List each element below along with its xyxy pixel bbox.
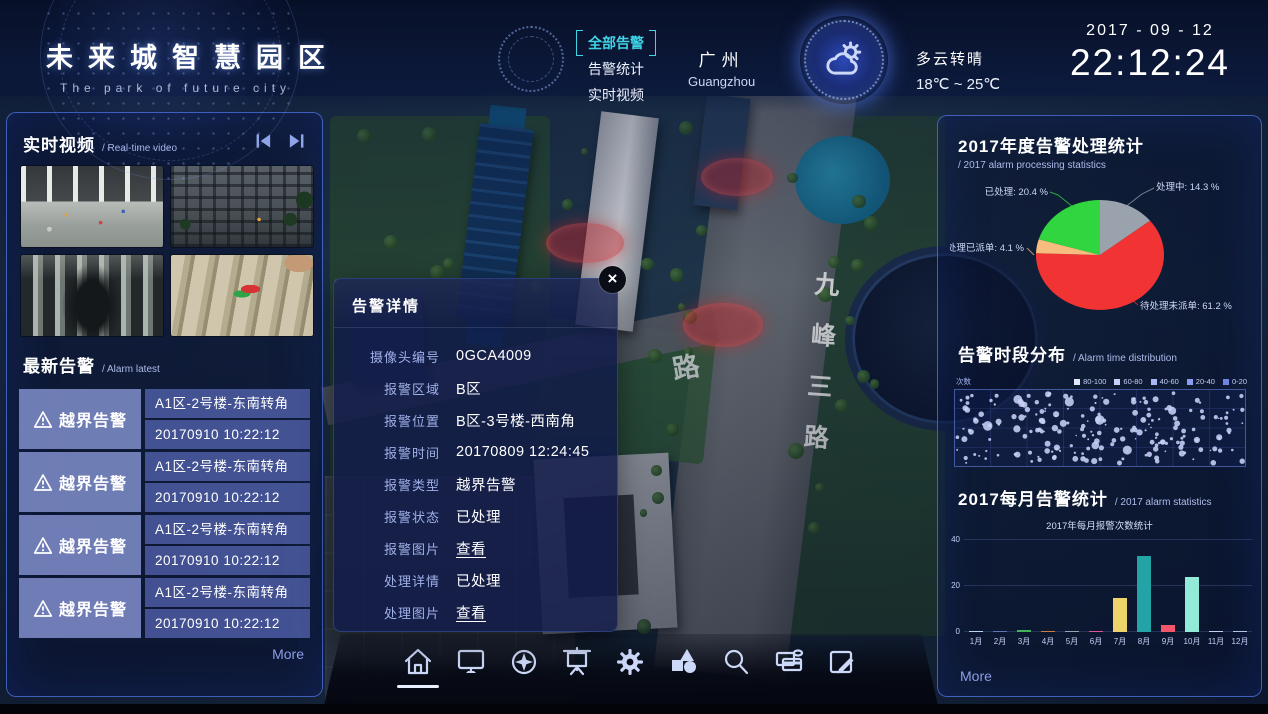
nav-item[interactable]: 全部告警	[578, 32, 654, 54]
popup-field-row: 报警图片 查看	[334, 532, 617, 564]
dashboard: 九峰三路 路 未来城智慧园区 The park of future city 全…	[0, 0, 1268, 714]
bar	[993, 631, 1007, 633]
scatter-dot	[993, 403, 995, 405]
legend-swatch	[1187, 379, 1193, 385]
scatter-dot	[1147, 408, 1150, 411]
nav-item[interactable]: 告警统计	[578, 58, 654, 80]
scatter-dot	[1026, 394, 1030, 398]
field-value[interactable]: 查看	[456, 538, 486, 559]
scatter-dot	[1180, 437, 1183, 440]
scatter-dot	[1192, 458, 1194, 460]
scatter-dot	[1144, 429, 1146, 431]
scatter-dot	[1086, 447, 1090, 451]
scatter-dot	[1024, 407, 1029, 412]
scatter-dot	[1224, 416, 1228, 420]
warning-icon	[33, 410, 53, 429]
scatter-dot	[1149, 440, 1154, 445]
scatter-dot	[995, 419, 1001, 425]
scatter-dot	[1094, 402, 1096, 404]
scatter-dot	[1217, 418, 1219, 420]
edit-button[interactable]	[825, 646, 859, 688]
scatter-dot	[959, 399, 962, 402]
legend-items: 80-100 60-80 40-60 20-40 0-20	[1074, 377, 1247, 386]
alarm-type-badge: 越界告警	[19, 515, 141, 575]
scatter-dot	[1117, 461, 1122, 466]
home-button[interactable]	[401, 646, 435, 688]
scatter-dot	[1013, 425, 1020, 432]
scatter-dot	[1080, 414, 1084, 418]
legend-item: 80-100	[1074, 377, 1106, 386]
alarm-row[interactable]: 越界告警 A1区-2号楼-东南转角 20170910 10:22:12	[19, 452, 310, 512]
scatter-dot	[1171, 391, 1175, 395]
bar	[1041, 631, 1055, 633]
popup-field-row: 处理图片 查看	[334, 596, 617, 628]
alarm-type-badge: 越界告警	[19, 389, 141, 449]
scatter-dot	[1053, 411, 1059, 417]
scatter-dot	[994, 394, 998, 398]
scatter-dot	[1164, 450, 1166, 452]
scatter-dot	[989, 399, 992, 402]
edit-icon	[826, 646, 858, 678]
bar-chart-inner-title: 2017年每月报警次数统计	[938, 518, 1261, 532]
x-tick: 5月	[1060, 636, 1084, 647]
scatter-dot	[970, 394, 973, 397]
pie-section-subheader: / 2017 alarm processing statistics	[938, 157, 1261, 171]
alarm-location: A1区-2号楼-东南转角	[145, 452, 310, 481]
scatter-dot	[1166, 405, 1172, 411]
alarm-detail-popup: × 告警详情 摄像头编号 0GCA4009 报警区域 B区 报警位置 B区-3号…	[333, 278, 618, 632]
scatter-dot	[1146, 413, 1151, 418]
alarm-timestamp: 20170910 10:22:12	[145, 483, 310, 512]
scatter-dot	[1183, 451, 1186, 454]
main-nav: 全部告警告警统计实时视频	[578, 32, 654, 106]
scatter-dot	[1058, 450, 1060, 452]
scatter-dot	[1150, 427, 1152, 429]
scatter-dot	[1194, 398, 1199, 403]
weather-badge	[800, 16, 888, 104]
alarm-type-label: 越界告警	[59, 407, 127, 431]
x-tick: 4月	[1036, 636, 1060, 647]
field-value: 20170809 12:24:45	[456, 444, 590, 460]
popup-field-row: 报警位置 B区-3号楼-西南角	[334, 404, 617, 436]
scatter-dot	[1103, 399, 1109, 405]
field-value: 0GCA4009	[456, 348, 532, 364]
scatter-dot	[1081, 434, 1085, 438]
statistics-panel: 2017年度告警处理统计 / 2017 alarm processing sta…	[937, 115, 1262, 697]
x-tick: 7月	[1108, 636, 1132, 647]
alarm-row[interactable]: 越界告警 A1区-2号楼-东南转角 20170910 10:22:12	[19, 578, 310, 638]
bar	[1065, 631, 1079, 633]
bar	[1113, 598, 1127, 633]
legend-swatch	[1074, 379, 1080, 385]
scatter-dot	[1034, 400, 1038, 404]
alarm-info: A1区-2号楼-东南转角 20170910 10:22:12	[145, 515, 310, 575]
popup-title: 告警详情	[334, 279, 617, 328]
scatter-dot	[1239, 459, 1244, 464]
scatter-dot	[1053, 445, 1059, 451]
city-name: 广州	[688, 46, 755, 71]
scatter-dot	[1029, 430, 1032, 433]
city-name-en: Guangzhou	[688, 74, 755, 89]
date-label: 2017 - 09 - 12	[1070, 22, 1230, 40]
scatter-dot	[1200, 415, 1205, 420]
scatter-dot	[1148, 423, 1150, 425]
scatter-dot	[978, 411, 984, 417]
legend-swatch	[1223, 379, 1229, 385]
scatter-dot	[985, 450, 987, 452]
weather-temp: 18℃ ~ 25℃	[916, 75, 1000, 93]
scatter-dot	[965, 401, 969, 405]
field-value: 越界告警	[456, 474, 516, 495]
alarm-info: A1区-2号楼-东南转角 20170910 10:22:12	[145, 389, 310, 449]
projector-screen-icon	[561, 646, 593, 678]
scatter-dot	[1098, 445, 1103, 450]
scatter-dot	[1239, 394, 1243, 398]
scatter-dot	[1052, 455, 1056, 459]
scatter-dot	[1039, 418, 1045, 424]
x-tick: 6月	[1084, 636, 1108, 647]
legend-item: 20-40	[1187, 377, 1215, 386]
pie-section-header: 2017年度告警处理统计	[938, 116, 1261, 157]
bar	[1017, 630, 1031, 632]
scatter-dot	[973, 453, 976, 456]
scatter-dot	[1169, 437, 1172, 440]
alarm-type-label: 越界告警	[59, 596, 127, 620]
scatter-dot	[1219, 417, 1222, 420]
bar	[969, 631, 983, 633]
bottom-edge	[0, 704, 1268, 714]
pie-leader-line	[1050, 192, 1078, 211]
bar-gridline	[964, 539, 1252, 540]
scatter-axis-label: 次数	[956, 376, 971, 387]
monitor-button[interactable]	[454, 646, 488, 688]
popup-field-row: 报警时间 20170809 12:24:45	[334, 436, 617, 468]
alarm-section-subtitle: / Alarm latest	[102, 364, 160, 375]
field-label: 报警位置	[334, 411, 440, 430]
scatter-dot	[1195, 439, 1198, 442]
scatter-dot	[1091, 442, 1099, 450]
scatter-dot	[1066, 422, 1069, 425]
scatter-dot	[1212, 446, 1217, 451]
top-header: 未来城智慧园区 The park of future city 全部告警告警统计…	[0, 0, 1268, 112]
scatter-dot	[1217, 448, 1221, 452]
field-label: 报警类型	[334, 475, 440, 494]
scatter-dot	[1174, 421, 1180, 427]
scatter-dot	[1121, 457, 1124, 460]
cloud-sun-icon	[823, 39, 865, 81]
field-label: 处理详情	[334, 571, 440, 590]
scatter-dot	[1098, 457, 1102, 461]
scatter-dot	[1134, 438, 1136, 440]
scatter-dot	[1072, 456, 1078, 462]
scatter-dot	[1157, 418, 1159, 420]
page-subtitle: The park of future city	[60, 81, 340, 95]
scatter-dot	[1047, 392, 1051, 396]
scatter-dot	[996, 454, 999, 457]
alarm-row[interactable]: 越界告警 A1区-2号楼-东南转角 20170910 10:22:12	[19, 515, 310, 575]
scatter-dot	[963, 456, 967, 460]
bar	[1209, 631, 1223, 633]
popup-field-row: 报警区域 B区	[334, 372, 617, 404]
scatter-dot	[1104, 424, 1106, 426]
scatter-dot	[1097, 431, 1102, 436]
scatter-dot	[1044, 448, 1050, 454]
scatter-dot	[1073, 452, 1075, 454]
bar-chart: 2017年每月报警次数统计 02040 1月2月3月4月5月6月7月8月9月10…	[938, 518, 1261, 647]
scatter-dot	[1113, 393, 1115, 395]
pie-label: 待处理未派单: 61.2 %	[1140, 300, 1232, 312]
weather-text: 多云转晴 18℃ ~ 25℃	[916, 48, 1000, 93]
scatter-dot	[1199, 409, 1203, 413]
pie-leader-line	[1120, 188, 1154, 211]
legend-label: 60-80	[1123, 377, 1142, 386]
scatter-dot	[987, 424, 991, 428]
scatter-dot	[961, 436, 967, 442]
field-value: B区	[456, 378, 481, 399]
alarm-type-badge: 越界告警	[19, 578, 141, 638]
bar-chart-title: 2017每月告警统计	[958, 485, 1108, 510]
scatter-dot	[1240, 408, 1244, 412]
time-label: 22:12:24	[1070, 42, 1230, 84]
scatter-dot	[1209, 450, 1211, 452]
x-tick: 3月	[1012, 636, 1036, 647]
scatter-dot	[1089, 406, 1094, 411]
alarm-info: A1区-2号楼-东南转角 20170910 10:22:12	[145, 578, 310, 638]
scatter-dot	[1037, 458, 1041, 462]
scatter-dot	[1178, 445, 1183, 450]
scatter-dot	[1232, 409, 1234, 411]
scatter-dot	[1044, 441, 1050, 447]
scatter-dot	[1091, 458, 1097, 464]
x-tick: 12月	[1228, 636, 1252, 647]
scatter-dot	[1051, 451, 1053, 453]
scatter-legend: 次数 80-100 60-80 40-60 20-40 0-20	[956, 376, 1247, 387]
scatter-dot	[1075, 435, 1077, 437]
scatter-dot	[1225, 411, 1228, 414]
alarm-info: A1区-2号楼-东南转角 20170910 10:22:12	[145, 452, 310, 512]
field-label: 报警区域	[334, 379, 440, 398]
scatter-dot	[1087, 438, 1089, 440]
scatter-dot	[1153, 446, 1158, 451]
popup-fields: 摄像头编号 0GCA4009 报警区域 B区 报警位置 B区-3号楼-西南角 报…	[334, 328, 617, 628]
scatter-dot	[1213, 415, 1217, 419]
scatter-dot	[1226, 396, 1230, 400]
scatter-dot	[1154, 456, 1159, 461]
x-tick: 10月	[1180, 636, 1204, 647]
alarm-timestamp: 20170910 10:22:12	[145, 420, 310, 449]
pie-leader-line	[1027, 248, 1034, 255]
monitor-icon	[455, 646, 487, 678]
scatter-dot	[1059, 420, 1066, 427]
alarm-timestamp: 20170910 10:22:12	[145, 609, 310, 638]
scatter-dot	[1142, 397, 1145, 400]
bar-gridline	[964, 585, 1252, 586]
x-tick: 8月	[1132, 636, 1156, 647]
scatter-dot	[1080, 456, 1085, 461]
scatter-dot	[1091, 434, 1093, 436]
bar	[1089, 631, 1103, 633]
video-thumbnail[interactable]	[171, 255, 313, 336]
scatter-dot	[965, 462, 967, 464]
scatter-dot	[1081, 452, 1084, 455]
scatter-dot	[1037, 428, 1041, 432]
cards-button[interactable]	[772, 646, 806, 688]
field-label: 摄像头编号	[334, 347, 440, 366]
alarm-type-badge: 越界告警	[19, 452, 141, 512]
scatter-dot	[1140, 417, 1146, 423]
gear-icon	[614, 646, 646, 678]
scatter-dot	[1130, 428, 1134, 432]
bar-y-tick: 0	[944, 627, 960, 636]
screen-button[interactable]	[560, 646, 594, 688]
shapes-button[interactable]	[666, 646, 700, 688]
close-icon[interactable]: ×	[599, 266, 626, 293]
settings-button[interactable]	[613, 646, 647, 688]
scatter-dot	[1176, 441, 1180, 445]
legend-swatch	[1151, 379, 1157, 385]
bar-y-tick: 40	[944, 535, 960, 544]
particle-ring-graphic	[498, 26, 564, 92]
shapes-icon	[667, 646, 699, 678]
scatter-dot	[1155, 432, 1159, 436]
scatter-dot	[1086, 420, 1088, 422]
pie-label: 处理中: 14.3 %	[1156, 181, 1220, 193]
scatter-dot	[978, 455, 980, 457]
bar-chart-subtitle: / 2017 alarm statistics	[1115, 497, 1212, 508]
pie-chart-subtitle: / 2017 alarm processing statistics	[958, 160, 1106, 171]
alarm-row[interactable]: 越界告警 A1区-2号楼-东南转角 20170910 10:22:12	[19, 389, 310, 449]
field-value: 已处理	[456, 506, 501, 527]
nav-item-label: 告警统计	[588, 61, 644, 77]
field-label: 报警状态	[334, 507, 440, 526]
scatter-dot	[1048, 403, 1051, 406]
video-thumbnail[interactable]	[21, 166, 163, 247]
x-tick: 9月	[1156, 636, 1180, 647]
scatter-dot	[1035, 413, 1037, 415]
field-value: 已处理	[456, 570, 501, 591]
video-thumbnail[interactable]	[21, 255, 163, 336]
scatter-dot	[1139, 401, 1141, 403]
scatter-dot	[1113, 427, 1119, 433]
scatter-dot	[1122, 446, 1131, 455]
scatter-dot	[1030, 460, 1033, 463]
scatter-dot	[1136, 429, 1142, 435]
alarm-list: 越界告警 A1区-2号楼-东南转角 20170910 10:22:12 越界告警…	[19, 389, 310, 638]
scatter-chart	[954, 389, 1246, 467]
scatter-dot	[1172, 416, 1177, 421]
scatter-dot	[1131, 397, 1135, 401]
scatter-dot	[1191, 428, 1195, 432]
x-tick: 1月	[964, 636, 988, 647]
legend-label: 80-100	[1083, 377, 1106, 386]
weather-desc: 多云转晴	[916, 48, 1000, 69]
scatter-dot	[1189, 409, 1192, 412]
compass-button[interactable]	[507, 646, 541, 688]
scatter-dot	[1181, 429, 1186, 434]
brand: 未来城智慧园区 The park of future city	[46, 36, 340, 95]
scatter-dot	[988, 438, 991, 441]
alarm-section-title: 最新告警	[23, 352, 95, 377]
right-more-link[interactable]: More	[960, 668, 992, 684]
scatter-dot	[1093, 395, 1097, 399]
alarm-location: A1区-2号楼-东南转角	[145, 515, 310, 544]
nav-item-label: 实时视频	[588, 87, 644, 103]
pie-label: 已处理: 20.4 %	[984, 186, 1048, 198]
compass-icon	[508, 646, 540, 678]
field-label: 处理图片	[334, 603, 440, 622]
field-value: B区-3号楼-西南角	[456, 410, 575, 431]
pie-chart-title: 2017年度告警处理统计	[958, 132, 1144, 157]
bar	[1185, 577, 1199, 632]
scatter-dot	[1110, 442, 1114, 446]
alarm-section-header: 最新告警 / Alarm latest	[23, 352, 308, 377]
left-more-link[interactable]: More	[19, 646, 304, 662]
legend-item: 60-80	[1114, 377, 1142, 386]
scatter-dot	[1044, 410, 1046, 412]
video-alarm-panel: 实时视频 / Real-time video 最新告警 / Alarm late…	[6, 112, 323, 697]
home-icon	[402, 646, 434, 678]
skip-forward-icon[interactable]	[287, 132, 306, 150]
alarm-location: A1区-2号楼-东南转角	[145, 389, 310, 418]
bar-x-axis: 1月2月3月4月5月6月7月8月9月10月11月12月	[964, 636, 1252, 647]
search-button[interactable]	[719, 646, 753, 688]
warning-icon	[33, 599, 53, 618]
bar	[1161, 625, 1175, 632]
legend-label: 0-20	[1232, 377, 1247, 386]
x-tick: 11月	[1204, 636, 1228, 647]
scatter-dot	[984, 457, 987, 460]
scatter-dot	[1225, 422, 1228, 425]
scatter-dot	[1094, 415, 1104, 425]
scatter-dot	[955, 435, 959, 439]
scatter-dot	[1090, 431, 1092, 433]
popup-field-row: 摄像头编号 0GCA4009	[334, 340, 617, 372]
scatter-chart-subtitle: / Alarm time distribution	[1073, 353, 1177, 364]
scatter-chart-title: 告警时段分布	[958, 341, 1066, 366]
popup-field-row: 处理详情 已处理	[334, 564, 617, 596]
bar-plot-area: 02040	[964, 540, 1252, 632]
nav-item[interactable]: 实时视频	[578, 84, 654, 106]
popup-field-row: 报警类型 越界告警	[334, 468, 617, 500]
bar	[1137, 556, 1151, 632]
datetime: 2017 - 09 - 12 22:12:24	[1070, 22, 1230, 84]
legend-item: 40-60	[1151, 377, 1179, 386]
scatter-dot	[1014, 452, 1020, 458]
alarm-type-label: 越界告警	[59, 470, 127, 494]
scatter-section-header: 告警时段分布 / Alarm time distribution	[938, 325, 1261, 366]
scatter-dot	[1044, 408, 1046, 410]
scatter-dot	[1066, 408, 1068, 410]
legend-item: 0-20	[1223, 377, 1247, 386]
scatter-dot	[1039, 409, 1044, 414]
alarm-location: A1区-2号楼-东南转角	[145, 578, 310, 607]
scatter-dot	[965, 396, 969, 400]
legend-swatch	[1114, 379, 1120, 385]
scatter-dot	[1120, 436, 1125, 441]
scatter-dot	[973, 418, 979, 424]
warning-icon	[33, 536, 53, 555]
nav-item-label: 全部告警	[588, 35, 644, 51]
bar-y-tick: 20	[944, 581, 960, 590]
scatter-dot	[1146, 452, 1151, 457]
video-grid	[21, 166, 310, 336]
alarm-type-label: 越界告警	[59, 533, 127, 557]
cards-icon	[773, 646, 805, 678]
scatter-dot	[1057, 429, 1062, 434]
field-value[interactable]: 查看	[456, 602, 486, 623]
bar	[1233, 631, 1247, 633]
scatter-dot	[1022, 434, 1027, 439]
